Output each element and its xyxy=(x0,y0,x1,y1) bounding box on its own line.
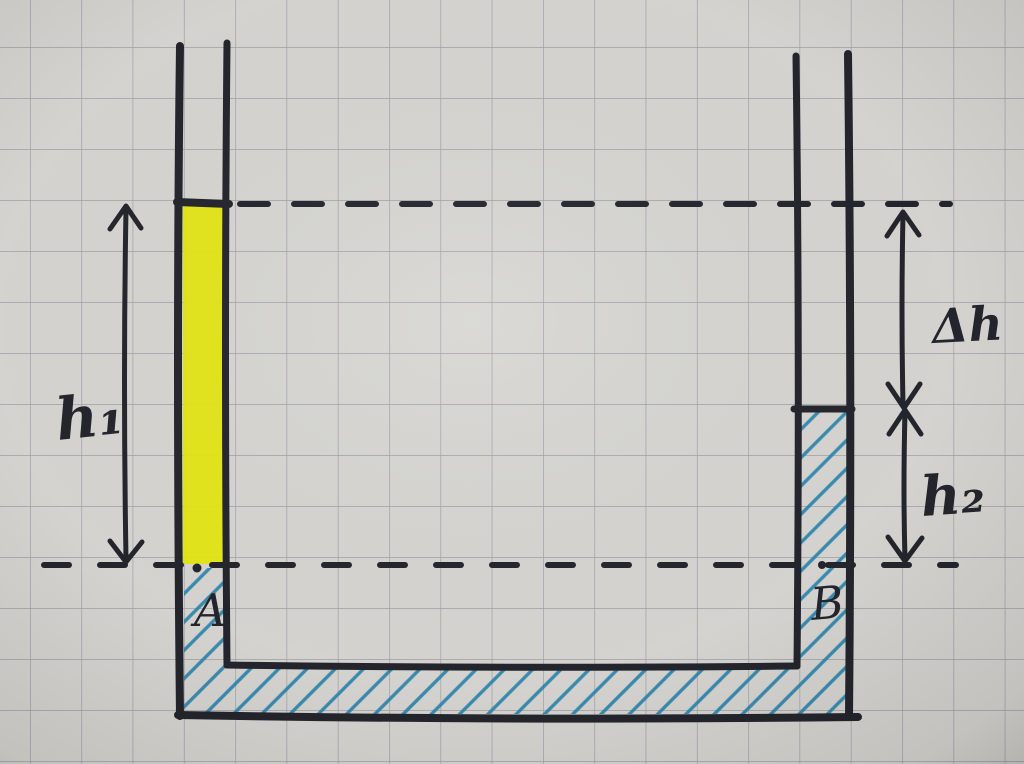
graph-paper-sketch: h₁ Δh h₂ A B xyxy=(0,0,1024,764)
u-tube-manometer-diagram: h₁ Δh h₂ A B xyxy=(0,0,1024,764)
photo-vignette-overlay xyxy=(0,0,1024,764)
